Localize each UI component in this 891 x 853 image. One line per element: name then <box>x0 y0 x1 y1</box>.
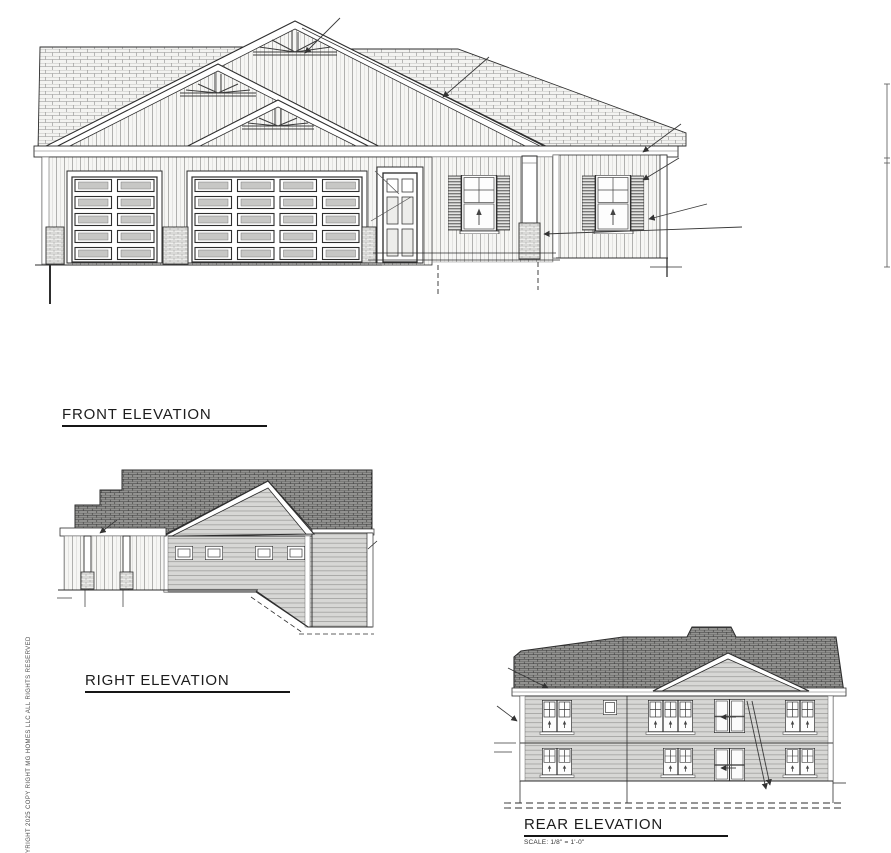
right-walkout-wall <box>312 533 372 627</box>
garage-door-single <box>67 171 162 263</box>
corner-trim-wing-left <box>553 155 559 258</box>
right-window-2 <box>205 546 223 560</box>
front-elevation-label: FRONT ELEVATION <box>62 406 267 427</box>
rear-corner-trim-left <box>520 696 525 781</box>
rear-scale-note: SCALE: 1/8" = 1'-0" <box>524 839 584 846</box>
rear-window-upper-left <box>542 700 572 732</box>
right-porch <box>60 520 166 590</box>
corner-trim-wing-right <box>660 155 667 258</box>
right-window-4 <box>287 546 305 560</box>
porch-post-1 <box>84 536 91 572</box>
rear-window-upper-right <box>785 700 815 732</box>
entry-door <box>371 167 423 263</box>
rear-elevation-label-text: REAR ELEVATION <box>524 816 663 833</box>
rear-foundation <box>504 781 846 808</box>
front-roof <box>34 21 686 157</box>
rear-sliding-door-lower <box>714 748 745 781</box>
porch-pier-2 <box>120 572 133 589</box>
front-elevation-label-text: FRONT ELEVATION <box>62 406 212 423</box>
front-elevation-view <box>34 18 890 304</box>
rear-elevation-view <box>494 627 846 808</box>
blueprint-sheet: FRONT ELEVATION RIGHT ELEVATION REAR ELE… <box>0 0 891 853</box>
rear-window-lower-mid <box>663 748 693 775</box>
front-dimension-line <box>884 84 890 267</box>
porch-post-2 <box>123 536 130 572</box>
copyright-vertical-text: YRIGHT 2025 COPY RIGHT MG HOMES LLC ALL … <box>26 607 32 853</box>
rear-corner-trim-right <box>828 696 833 781</box>
rear-window-small-square <box>603 700 617 715</box>
garage-door-double <box>187 171 367 263</box>
rear-sliding-door-upper <box>714 699 745 733</box>
rear-elevation-label: REAR ELEVATION <box>524 816 728 837</box>
right-elevation-view <box>57 470 377 634</box>
rear-window-lower-right <box>785 748 815 775</box>
rear-window-lower-left <box>542 748 572 775</box>
right-elevation-label-text: RIGHT ELEVATION <box>85 672 230 689</box>
porch-column <box>522 156 537 224</box>
front-window-right-shuttered <box>582 175 644 234</box>
right-window-1 <box>175 546 193 560</box>
front-window-left-shuttered <box>448 175 510 234</box>
rear-window-upper-triple <box>648 700 693 732</box>
right-elevation-label: RIGHT ELEVATION <box>85 672 290 693</box>
porch-pier-1 <box>81 572 94 589</box>
right-window-3 <box>255 546 273 560</box>
